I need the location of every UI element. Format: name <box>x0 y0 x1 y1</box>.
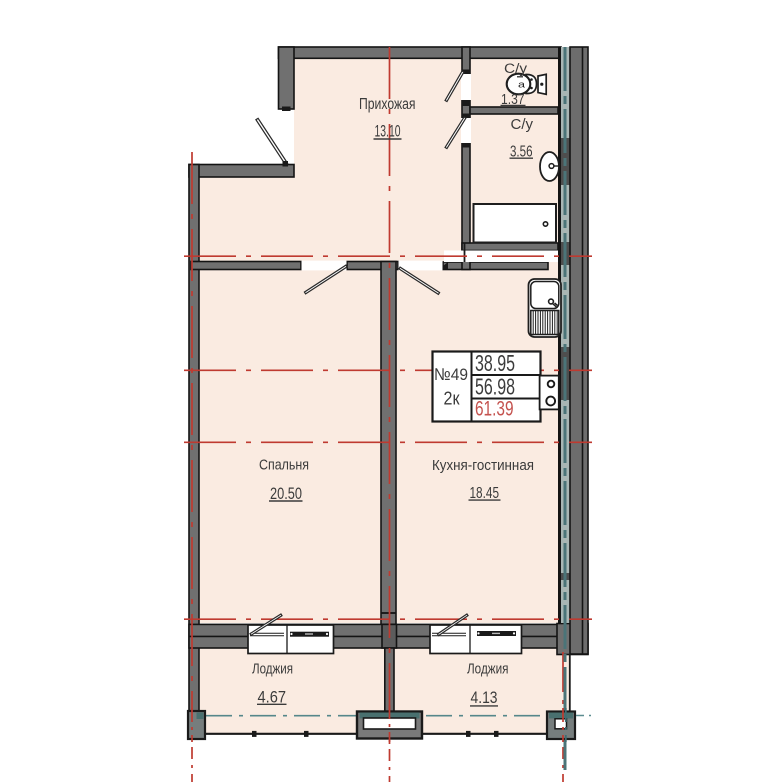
svg-text:Прихожая: Прихожая <box>359 96 416 113</box>
svg-text:38.95: 38.95 <box>475 350 515 376</box>
svg-text:Лоджия: Лоджия <box>467 662 509 678</box>
svg-text:4.13: 4.13 <box>471 689 498 707</box>
svg-text:18.45: 18.45 <box>470 485 500 502</box>
svg-text:Лоджия: Лоджия <box>252 662 293 678</box>
svg-text:Кухня-гостинная: Кухня-гостинная <box>432 458 534 474</box>
svg-text:61.39: 61.39 <box>475 397 514 421</box>
svg-text:№49: №49 <box>434 365 468 384</box>
svg-text:С/у: С/у <box>504 61 527 76</box>
svg-text:13.10: 13.10 <box>375 122 401 141</box>
svg-text:2к: 2к <box>444 388 461 409</box>
svg-text:С/у: С/у <box>511 116 534 133</box>
svg-text:Спальня: Спальня <box>259 457 309 473</box>
svg-text:а: а <box>518 80 526 91</box>
svg-text:20.50: 20.50 <box>270 485 302 503</box>
